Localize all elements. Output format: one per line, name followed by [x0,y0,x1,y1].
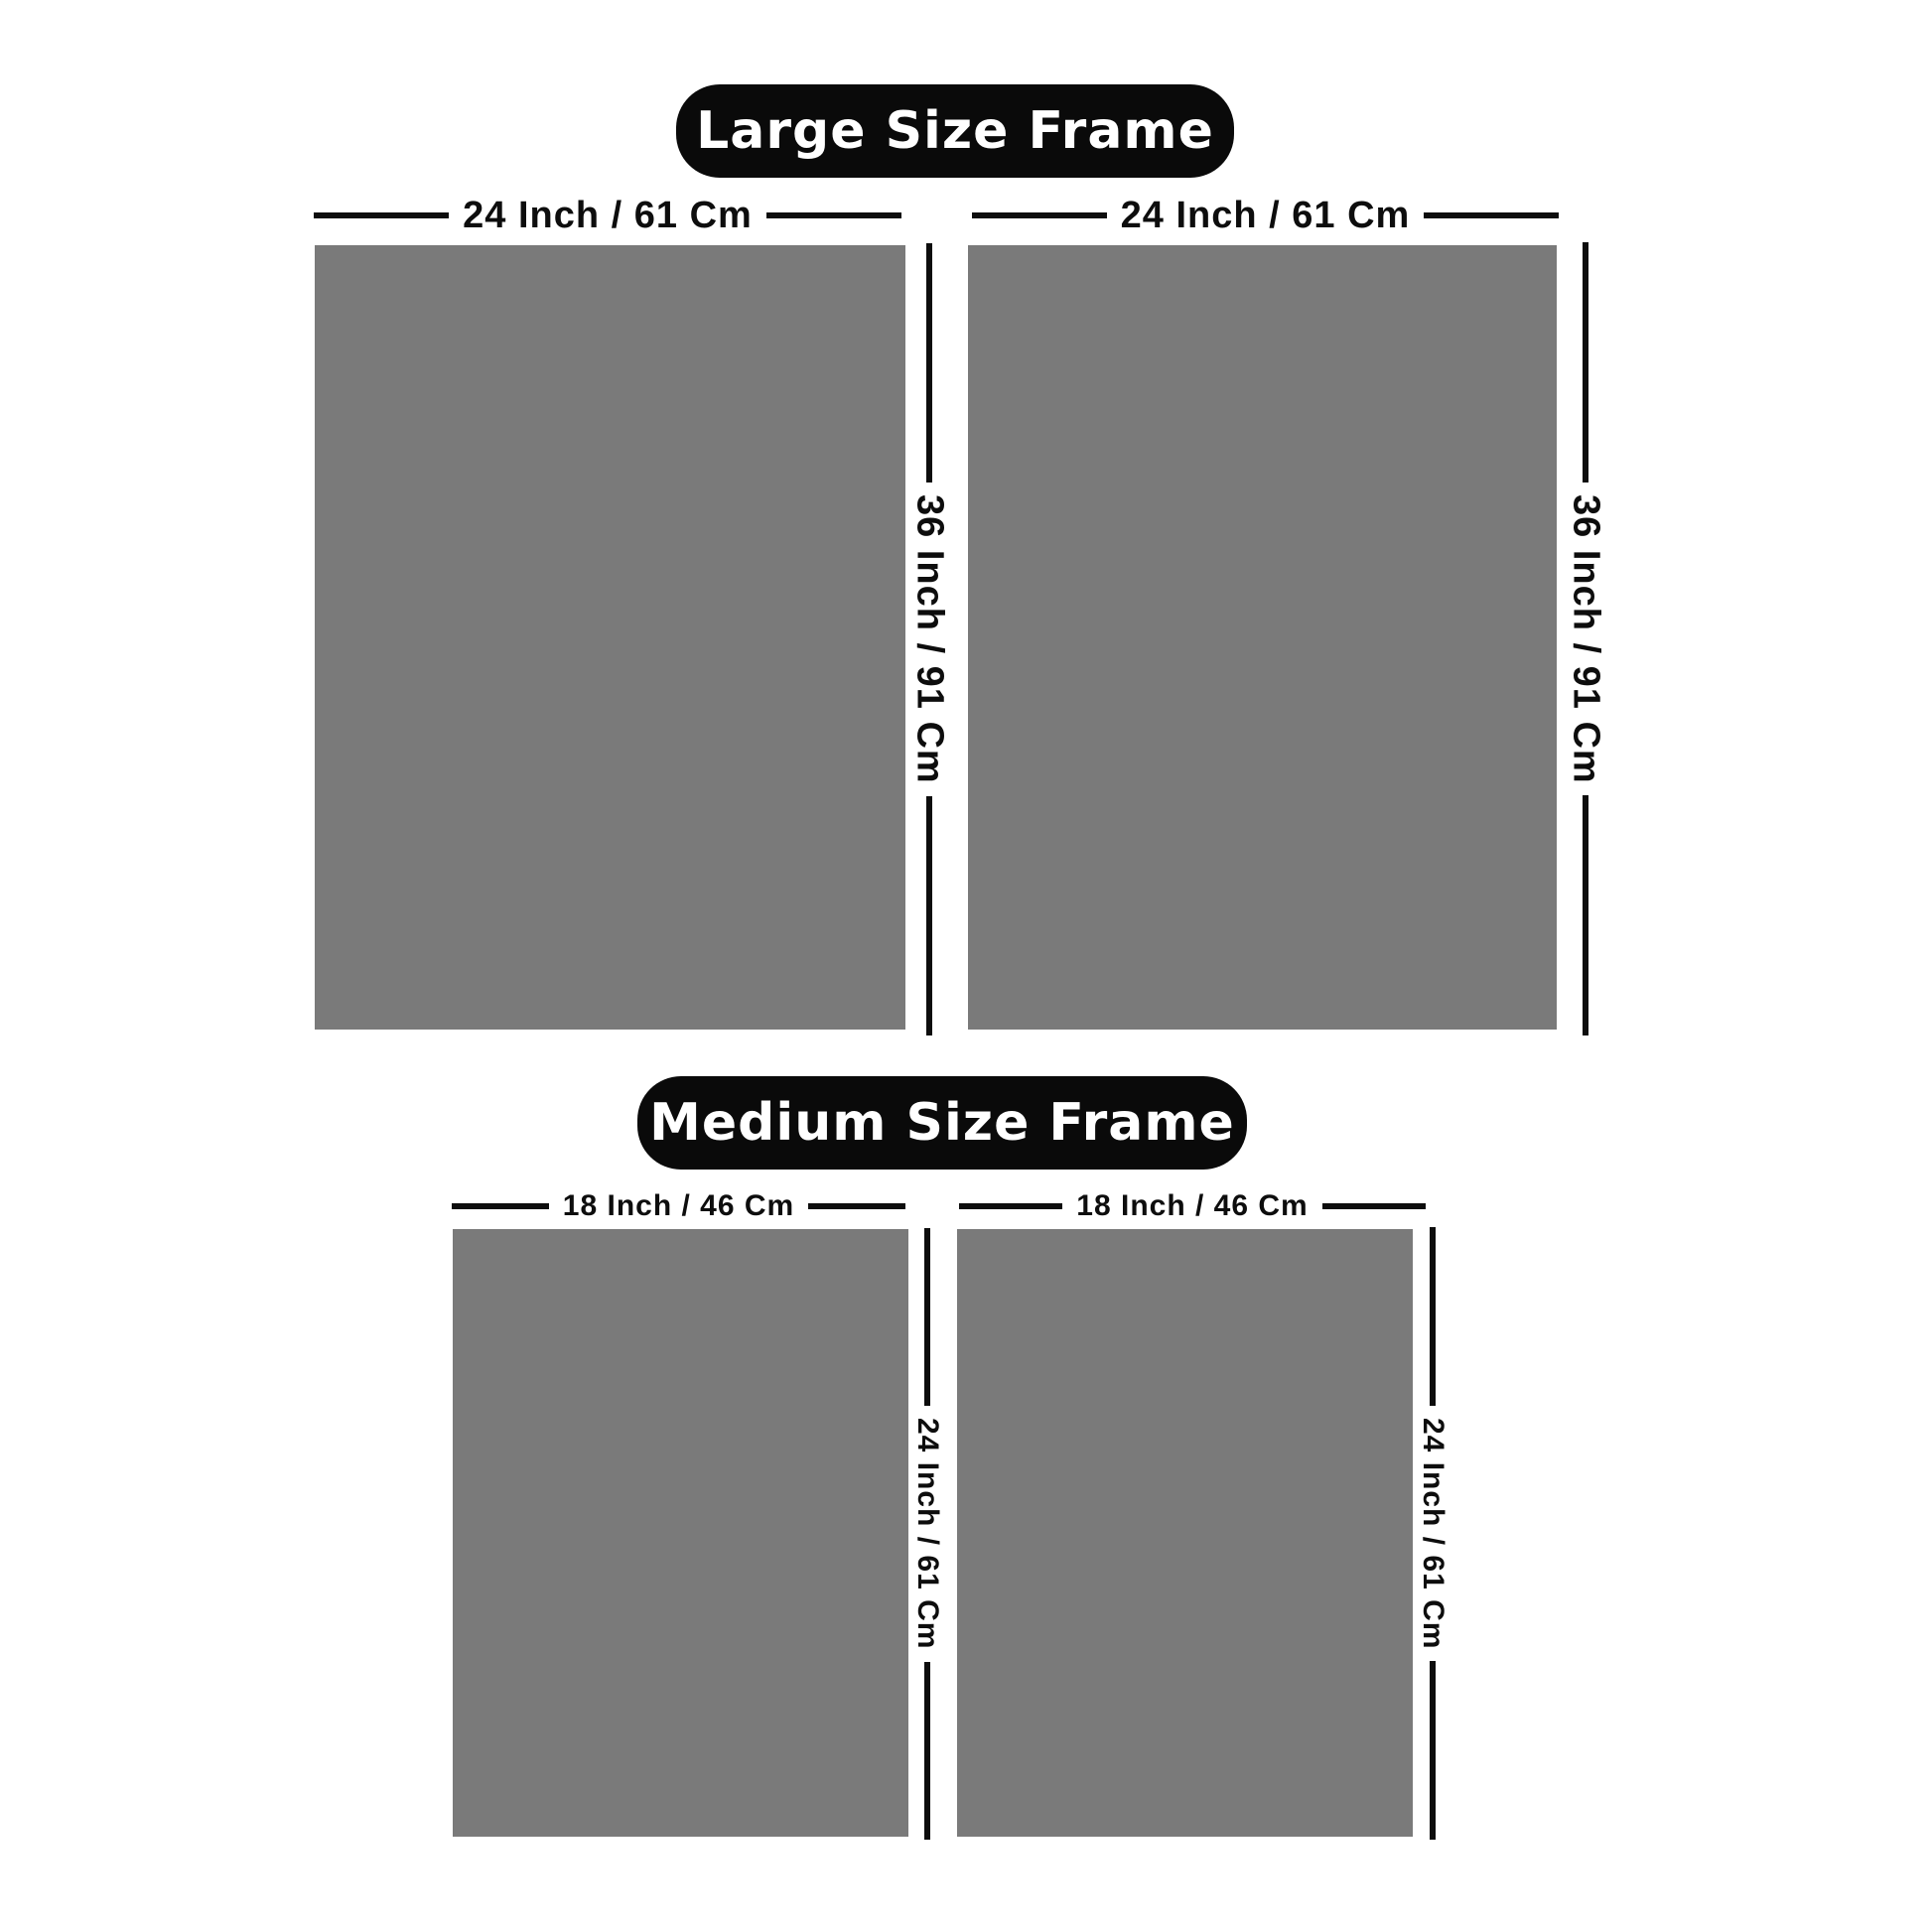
dimension-line [808,1203,905,1209]
large-right-frame-preview [968,245,1557,1030]
large-left-height-dimension: 36 Inch / 91 Cm [901,243,957,1035]
dimension-line [1322,1203,1426,1209]
dimension-line [1430,1661,1436,1840]
dimension-line [1583,242,1588,483]
medium-right-width-label: 18 Inch / 46 Cm [1076,1189,1308,1223]
medium-right-width-dimension: 18 Inch / 46 Cm [959,1187,1426,1225]
dimension-line [926,243,932,483]
dimension-line [314,212,449,218]
dimension-line [1430,1227,1436,1406]
dimension-line [924,1662,930,1840]
large-left-height-label: 36 Inch / 91 Cm [908,494,951,784]
large-left-width-dimension: 24 Inch / 61 Cm [314,196,901,235]
large-section-title-badge: Large Size Frame [676,84,1234,178]
size-chart-canvas: Large Size Frame 24 Inch / 61 Cm 24 Inch… [0,0,1932,1932]
medium-left-width-dimension: 18 Inch / 46 Cm [452,1187,905,1225]
large-right-width-label: 24 Inch / 61 Cm [1121,195,1411,237]
large-section-title: Large Size Frame [696,101,1214,161]
dimension-line [924,1228,930,1406]
large-right-height-label: 36 Inch / 91 Cm [1565,494,1607,784]
dimension-line [452,1203,549,1209]
medium-right-height-label: 24 Inch / 61 Cm [1416,1418,1449,1649]
medium-section-title-badge: Medium Size Frame [637,1076,1247,1170]
medium-right-height-dimension: 24 Inch / 61 Cm [1405,1227,1460,1840]
dimension-line [1583,795,1588,1035]
medium-left-frame-preview [453,1229,908,1837]
medium-section-title: Medium Size Frame [649,1093,1235,1153]
large-right-width-dimension: 24 Inch / 61 Cm [972,196,1559,235]
large-left-frame-preview [315,245,905,1030]
dimension-line [926,796,932,1035]
dimension-line [959,1203,1062,1209]
large-right-height-dimension: 36 Inch / 91 Cm [1558,242,1613,1035]
medium-right-frame-preview [957,1229,1413,1837]
medium-left-height-dimension: 24 Inch / 61 Cm [899,1228,955,1840]
large-left-width-label: 24 Inch / 61 Cm [463,195,753,237]
medium-left-width-label: 18 Inch / 46 Cm [563,1189,794,1223]
dimension-line [1424,212,1559,218]
dimension-line [766,212,901,218]
medium-left-height-label: 24 Inch / 61 Cm [910,1418,944,1649]
dimension-line [972,212,1107,218]
